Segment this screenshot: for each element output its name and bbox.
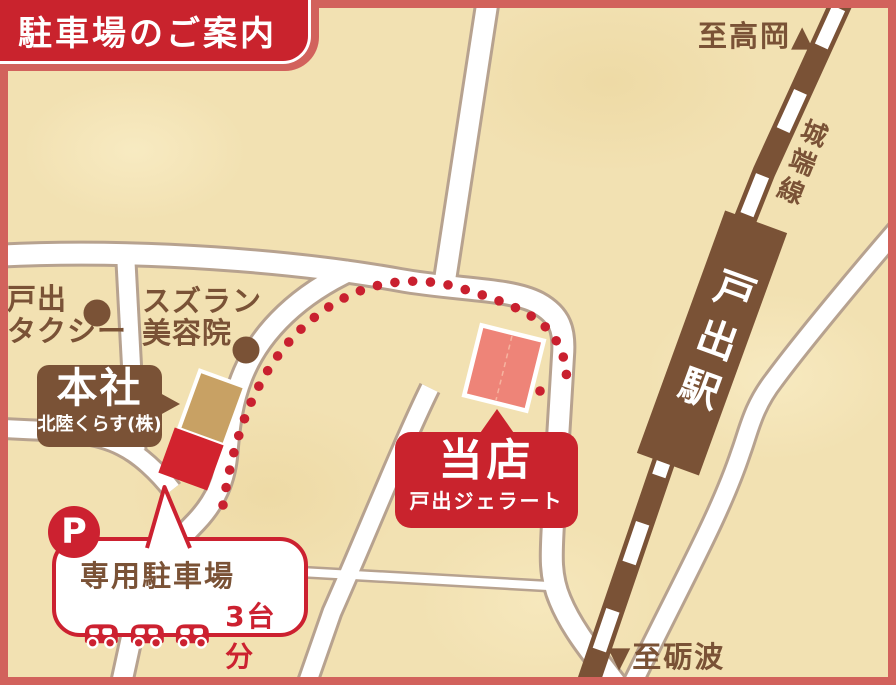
car-icon [173,619,212,651]
shop-callout: 当店 戸出ジェラート [395,432,578,528]
poi-taxi-line2: タクシー [7,315,127,347]
direction-takaoka: 至高岡▲ [698,13,815,55]
shop-building [464,325,544,410]
poi-salon-line2: 美容院 [142,317,262,349]
car-icon [82,619,121,651]
head-office-title: 本社 [37,367,162,410]
poi-salon-label: スズラン 美容院 [142,285,262,350]
direction-tonami: ▼至砺波 [608,634,725,676]
parking-badge: P [48,506,100,558]
poi-taxi-label: 戸出 タクシー [7,283,127,348]
poi-salon-line1: スズラン [142,285,262,317]
parking-map: 至高岡▲ 城端線 戸出駅 ▼至砺波 戸出 タクシー スズラン 美容院 本社 北陸… [0,0,896,685]
parking-cars-row: 3台分 [82,595,304,675]
car-icon [128,619,167,651]
parking-callout-pointer [140,480,196,550]
poi-taxi-line1: 戸出 [7,283,127,315]
page-title: 駐車場のご案内 [0,6,277,55]
head-office-company: 北陸くらす(株) [37,410,162,436]
parking-label: 専用駐車場 [80,553,235,595]
road [445,0,489,280]
title-banner: 駐車場のご案内 [0,0,311,64]
head-office-callout-pointer [160,393,180,415]
route-end-dot [535,386,545,396]
shop-title: 当店 [395,437,578,485]
shop-building-rect [464,325,544,410]
head-office-callout: 本社 北陸くらす(株) [37,365,162,447]
parking-capacity: 3台分 [225,595,304,675]
shop-name: 戸出ジェラート [395,485,578,514]
